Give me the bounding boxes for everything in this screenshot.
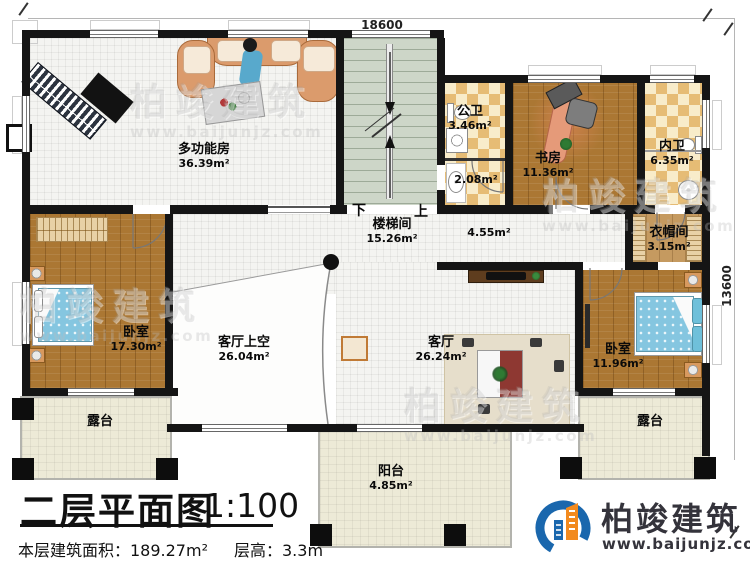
wall [590,205,655,214]
floor-height-text: 层高：3.3m [234,537,323,561]
room-label-cloakroom: 衣帽间3.15m² [647,226,690,254]
floor-area-text: 本层建筑面积：189.27m² [18,537,208,561]
stair-up-label: 上 [414,201,428,221]
plan-info: 本层建筑面积：189.27m² 层高：3.3m [18,537,323,561]
window-sill [528,65,602,75]
wall [505,83,513,214]
dimension-line-right [734,18,735,460]
title-underline [20,524,273,527]
piano [36,44,156,134]
wall [336,38,344,214]
floor-plan-canvas: 18600 13600 [0,0,750,567]
nightstand [684,272,702,288]
plant [560,138,572,150]
company-name: 柏竣建筑 [601,494,741,540]
person-head [243,38,257,52]
tv-panel [585,304,590,348]
sink-bowl [678,180,699,200]
window [68,388,134,396]
window-sill [712,100,722,150]
wall [637,83,645,214]
wardrobe [36,217,108,242]
tea-table [341,336,368,361]
window [702,100,710,148]
dimension-top: 18600 [352,18,412,32]
window-sill [650,65,696,75]
room-label-bath-lobby: 2.08m² [454,174,497,187]
wall [437,190,445,214]
terrace-right-floor [578,396,710,480]
wall [170,205,268,214]
column [560,457,582,479]
window [228,30,308,38]
room-label-terrace-left: 露台 [87,415,113,430]
column [12,458,34,480]
plant [492,366,508,382]
axis-tick-icon [723,22,733,35]
stair-railing [268,206,330,213]
room-floor-hall2 [173,262,336,294]
bed-mattress [636,296,694,352]
window-sill [12,282,22,346]
dimension-right: 13600 [720,256,734,316]
window [650,75,694,83]
window [528,75,600,83]
bed-mattress [38,288,92,342]
column [156,458,178,480]
sofa-pillow [554,360,564,372]
half-wall-public-bath [445,158,505,161]
wall [437,38,445,83]
balcony-floor [318,430,512,548]
column [694,457,716,479]
nightstand [28,266,45,281]
wall [437,83,445,165]
sofa-pillow [478,404,490,414]
room-label-living-void: 客厅上空26.04m² [218,336,270,364]
column [444,524,466,546]
wall [165,214,173,396]
balcony-door-window [357,424,422,432]
axis-tick-icon [702,8,712,21]
axis-tick-icon [18,2,28,15]
tv [486,272,526,280]
terrace-left-floor [20,396,172,480]
window [613,388,675,396]
window [22,282,30,344]
stair-down-label: 下 [352,200,366,220]
room-label-corridor: 4.55m² [467,227,510,240]
window [22,96,30,152]
nightstand [28,348,45,363]
room-label-stairwell: 楼梯间15.26m² [366,218,417,246]
wall [437,205,553,214]
room-label-multi: 多功能房36.39m² [178,143,230,171]
nightstand [684,362,702,378]
wall [625,214,633,270]
column [12,398,34,420]
company-website: www.baijunjz.com [602,535,750,553]
plan-scale: 1:100 [204,486,299,525]
window [90,30,158,38]
plant [532,272,540,280]
room-label-balcony: 阳台4.85m² [369,465,412,493]
window-sill [90,20,160,30]
window [202,424,287,432]
room-label-bedroom-right: 卧室11.96m² [592,343,643,371]
room-label-terrace-right: 露台 [637,415,663,430]
room-label-inner-bath: 内卫6.35m² [650,140,693,168]
sofa-pillow [530,338,542,347]
room-label-study: 书房11.36m² [522,152,573,180]
window [702,305,710,363]
pillow [34,290,43,312]
company-logo-icon [533,492,597,556]
room-label-living: 客厅26.24m² [415,336,466,364]
wall [575,262,583,396]
stair-stringer [386,44,393,199]
wall [22,205,133,214]
pillow [34,316,43,338]
wall [437,262,583,270]
window-sill [228,20,310,30]
room-label-bedroom-left: 卧室17.30m² [110,326,161,354]
room-label-public-bath: 公卫3.46m² [448,105,491,133]
